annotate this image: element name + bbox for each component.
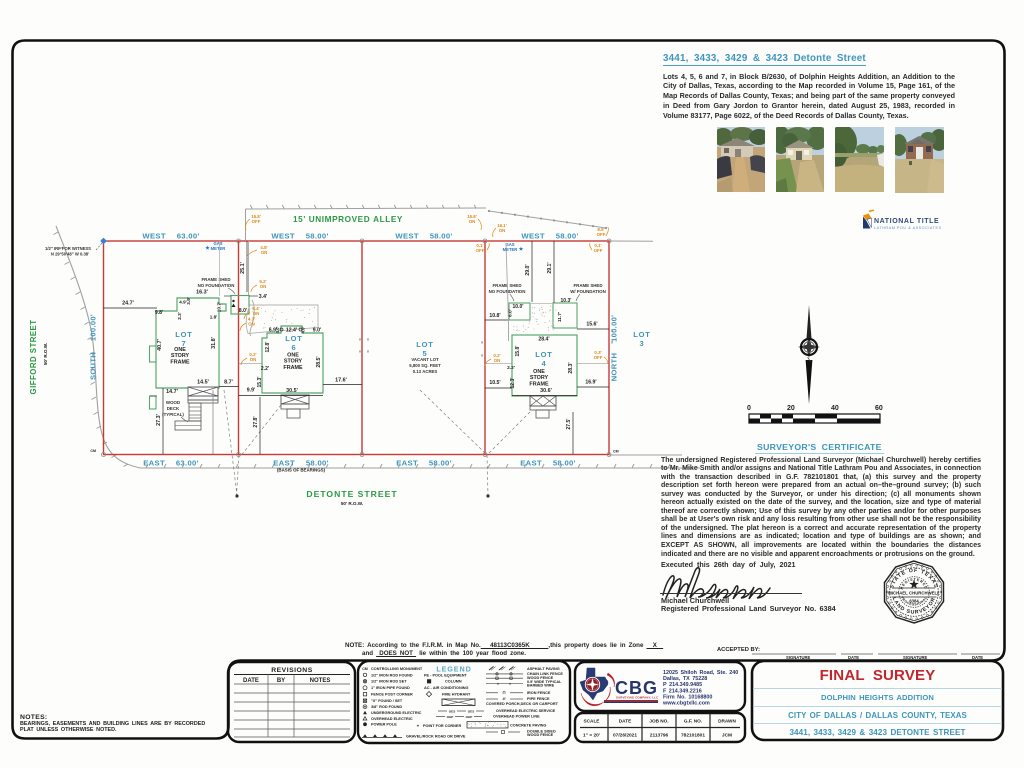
svg-text:OVERHEAD ELECTRIC SERVICE: OVERHEAD ELECTRIC SERVICE	[496, 709, 556, 713]
svg-text:COLUMN: COLUMN	[445, 680, 462, 684]
svg-text:AC - AIR CONDITIONING: AC - AIR CONDITIONING	[424, 686, 469, 690]
svg-text:OHP: OHP	[447, 715, 454, 719]
svg-text:0: 0	[747, 405, 751, 412]
svg-text:PE - POOL EQUIPMENT: PE - POOL EQUIPMENT	[424, 673, 468, 677]
svg-text:UNDERGROUND ELECTRIC: UNDERGROUND ELECTRIC	[371, 711, 422, 715]
svg-text:www.cbgtxllc.com: www.cbgtxllc.com	[662, 701, 710, 707]
svg-text:WOOD FENCE: WOOD FENCE	[527, 733, 554, 737]
svg-text:20: 20	[787, 405, 795, 412]
svg-text:782101801: 782101801	[681, 733, 705, 739]
svg-text:12025 Shiloh Road, Ste. 240: 12025 Shiloh Road, Ste. 240	[663, 670, 738, 676]
svg-text:1/2" IRON ROD SET: 1/2" IRON ROD SET	[371, 680, 407, 684]
svg-text:"X" FOUND / SET: "X" FOUND / SET	[371, 699, 403, 703]
svg-text:REVISIONS: REVISIONS	[271, 667, 313, 674]
svg-text:BARBED WIRE: BARBED WIRE	[527, 683, 555, 687]
svg-text:1/2" IRON ROD FOUND: 1/2" IRON ROD FOUND	[371, 673, 413, 677]
svg-text:G.F. NO.: G.F. NO.	[684, 719, 702, 724]
svg-text:P 214.349.9485: P 214.349.9485	[663, 682, 702, 688]
svg-text:FIRE HYDRANT: FIRE HYDRANT	[442, 693, 471, 697]
svg-text:SIGNATURE: SIGNATURE	[786, 655, 811, 660]
svg-text:COVERED PORCH,DECK OR CARPORT: COVERED PORCH,DECK OR CARPORT	[486, 702, 559, 706]
svg-text:LEGEND: LEGEND	[436, 665, 471, 674]
svg-text:FENCE POST CORNER: FENCE POST CORNER	[371, 693, 413, 697]
svg-text:CONTROLLING MONUMENT: CONTROLLING MONUMENT	[371, 667, 423, 671]
svg-text:F 214.349.2216: F 214.349.2216	[663, 688, 702, 694]
svg-text:MICHAEL CHURCHWELL: MICHAEL CHURCHWELL	[888, 591, 940, 596]
svg-text:DATE: DATE	[972, 655, 983, 660]
svg-text:1" = 20': 1" = 20'	[583, 733, 600, 739]
svg-text:JOB NO.: JOB NO.	[649, 719, 668, 724]
svg-text:OVERHEAD ELECTRIC: OVERHEAD ELECTRIC	[371, 717, 413, 721]
svg-text:6384: 6384	[909, 599, 919, 604]
svg-text:DATE: DATE	[619, 719, 631, 724]
svg-text:CONCRETE PAVING: CONCRETE PAVING	[510, 724, 546, 728]
svg-text:OHP: OHP	[466, 715, 473, 719]
svg-text:60: 60	[875, 405, 883, 412]
svg-text:40: 40	[831, 405, 839, 412]
svg-text:BY: BY	[277, 678, 285, 684]
svg-text:ASPHALT PAVING: ASPHALT PAVING	[527, 667, 560, 671]
svg-text:OES: OES	[449, 709, 456, 713]
svg-text:+: +	[417, 723, 420, 728]
svg-text:SCALE: SCALE	[584, 719, 600, 724]
svg-text:OES: OES	[468, 709, 475, 713]
svg-text:1" IRON PIPE FOUND: 1" IRON PIPE FOUND	[371, 686, 410, 690]
svg-text:⊓: ⊓	[502, 690, 505, 695]
svg-text:OVERHEAD POWER LINE: OVERHEAD POWER LINE	[493, 714, 540, 718]
svg-text:Firm No. 10168800: Firm No. 10168800	[663, 694, 712, 700]
svg-text:JCM: JCM	[722, 733, 732, 739]
svg-text:SIGNATURE: SIGNATURE	[903, 655, 928, 660]
svg-text:IRON FENCE: IRON FENCE	[527, 691, 551, 695]
svg-text:POINT FOR CORNER: POINT FOR CORNER	[423, 724, 461, 728]
svg-text:DATE: DATE	[243, 678, 259, 684]
svg-text:PIPE FENCE: PIPE FENCE	[527, 697, 550, 701]
svg-text:GRAVEL/ROCK ROAD OR DRIVE: GRAVEL/ROCK ROAD OR DRIVE	[406, 735, 466, 739]
svg-text:POWER POLE: POWER POLE	[371, 723, 397, 727]
svg-text:SURVEYING COMPANY, LLC: SURVEYING COMPANY, LLC	[616, 696, 658, 700]
svg-text:07/26/2021: 07/26/2021	[613, 733, 637, 739]
svg-text:×: ×	[497, 682, 499, 686]
svg-text:CM: CM	[362, 667, 368, 671]
svg-text:DATE: DATE	[848, 655, 859, 660]
svg-text:2113796: 2113796	[650, 733, 669, 739]
svg-text:Dallas, TX 75228: Dallas, TX 75228	[663, 676, 707, 682]
svg-text:DRAWN: DRAWN	[718, 719, 736, 724]
svg-text:NOTES: NOTES	[310, 678, 331, 684]
svg-text:///: ///	[503, 697, 506, 701]
svg-text:×: ×	[509, 682, 511, 686]
svg-text:3/8" ROD FOUND: 3/8" ROD FOUND	[371, 705, 402, 709]
